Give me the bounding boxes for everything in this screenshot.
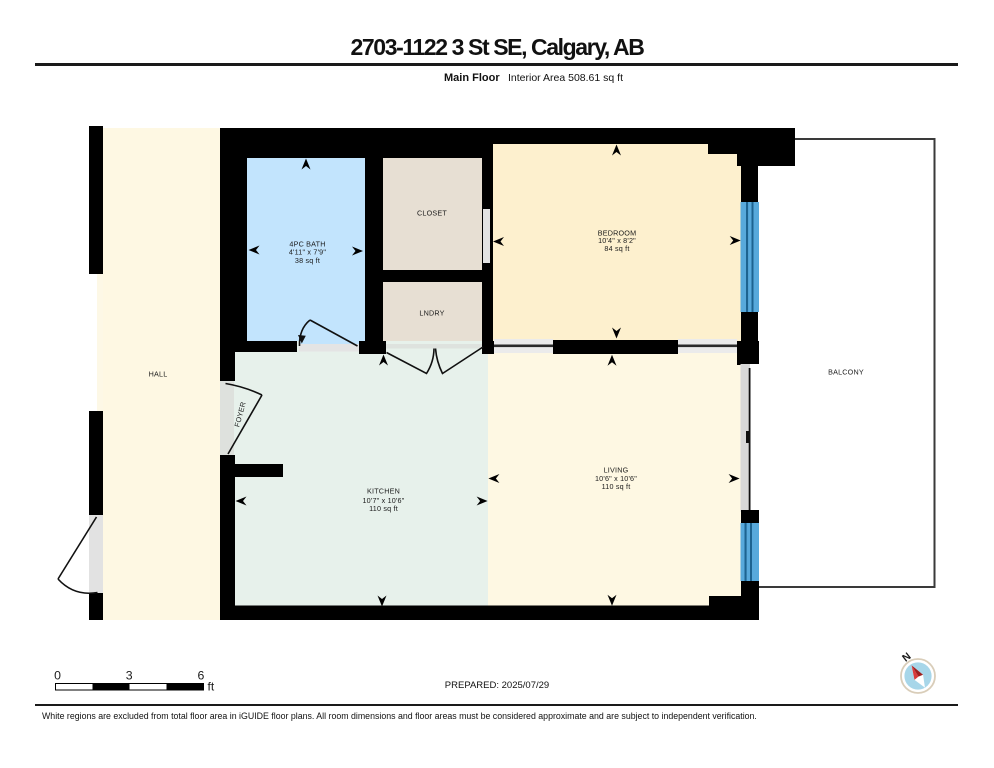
svg-text:3: 3 — [126, 669, 133, 683]
svg-text:84 sq ft: 84 sq ft — [604, 244, 629, 253]
svg-text:38 sq ft: 38 sq ft — [295, 256, 320, 265]
svg-text:6: 6 — [197, 669, 204, 683]
svg-text:LNDRY: LNDRY — [419, 309, 444, 318]
svg-text:CLOSET: CLOSET — [417, 209, 447, 218]
svg-text:ft: ft — [208, 680, 215, 694]
svg-text:0: 0 — [54, 669, 61, 683]
svg-text:BALCONY: BALCONY — [828, 368, 864, 377]
svg-text:110 sq ft: 110 sq ft — [369, 504, 398, 513]
svg-text:HALL: HALL — [149, 370, 168, 379]
svg-text:KITCHEN: KITCHEN — [367, 487, 400, 496]
svg-text:110 sq ft: 110 sq ft — [602, 482, 631, 491]
